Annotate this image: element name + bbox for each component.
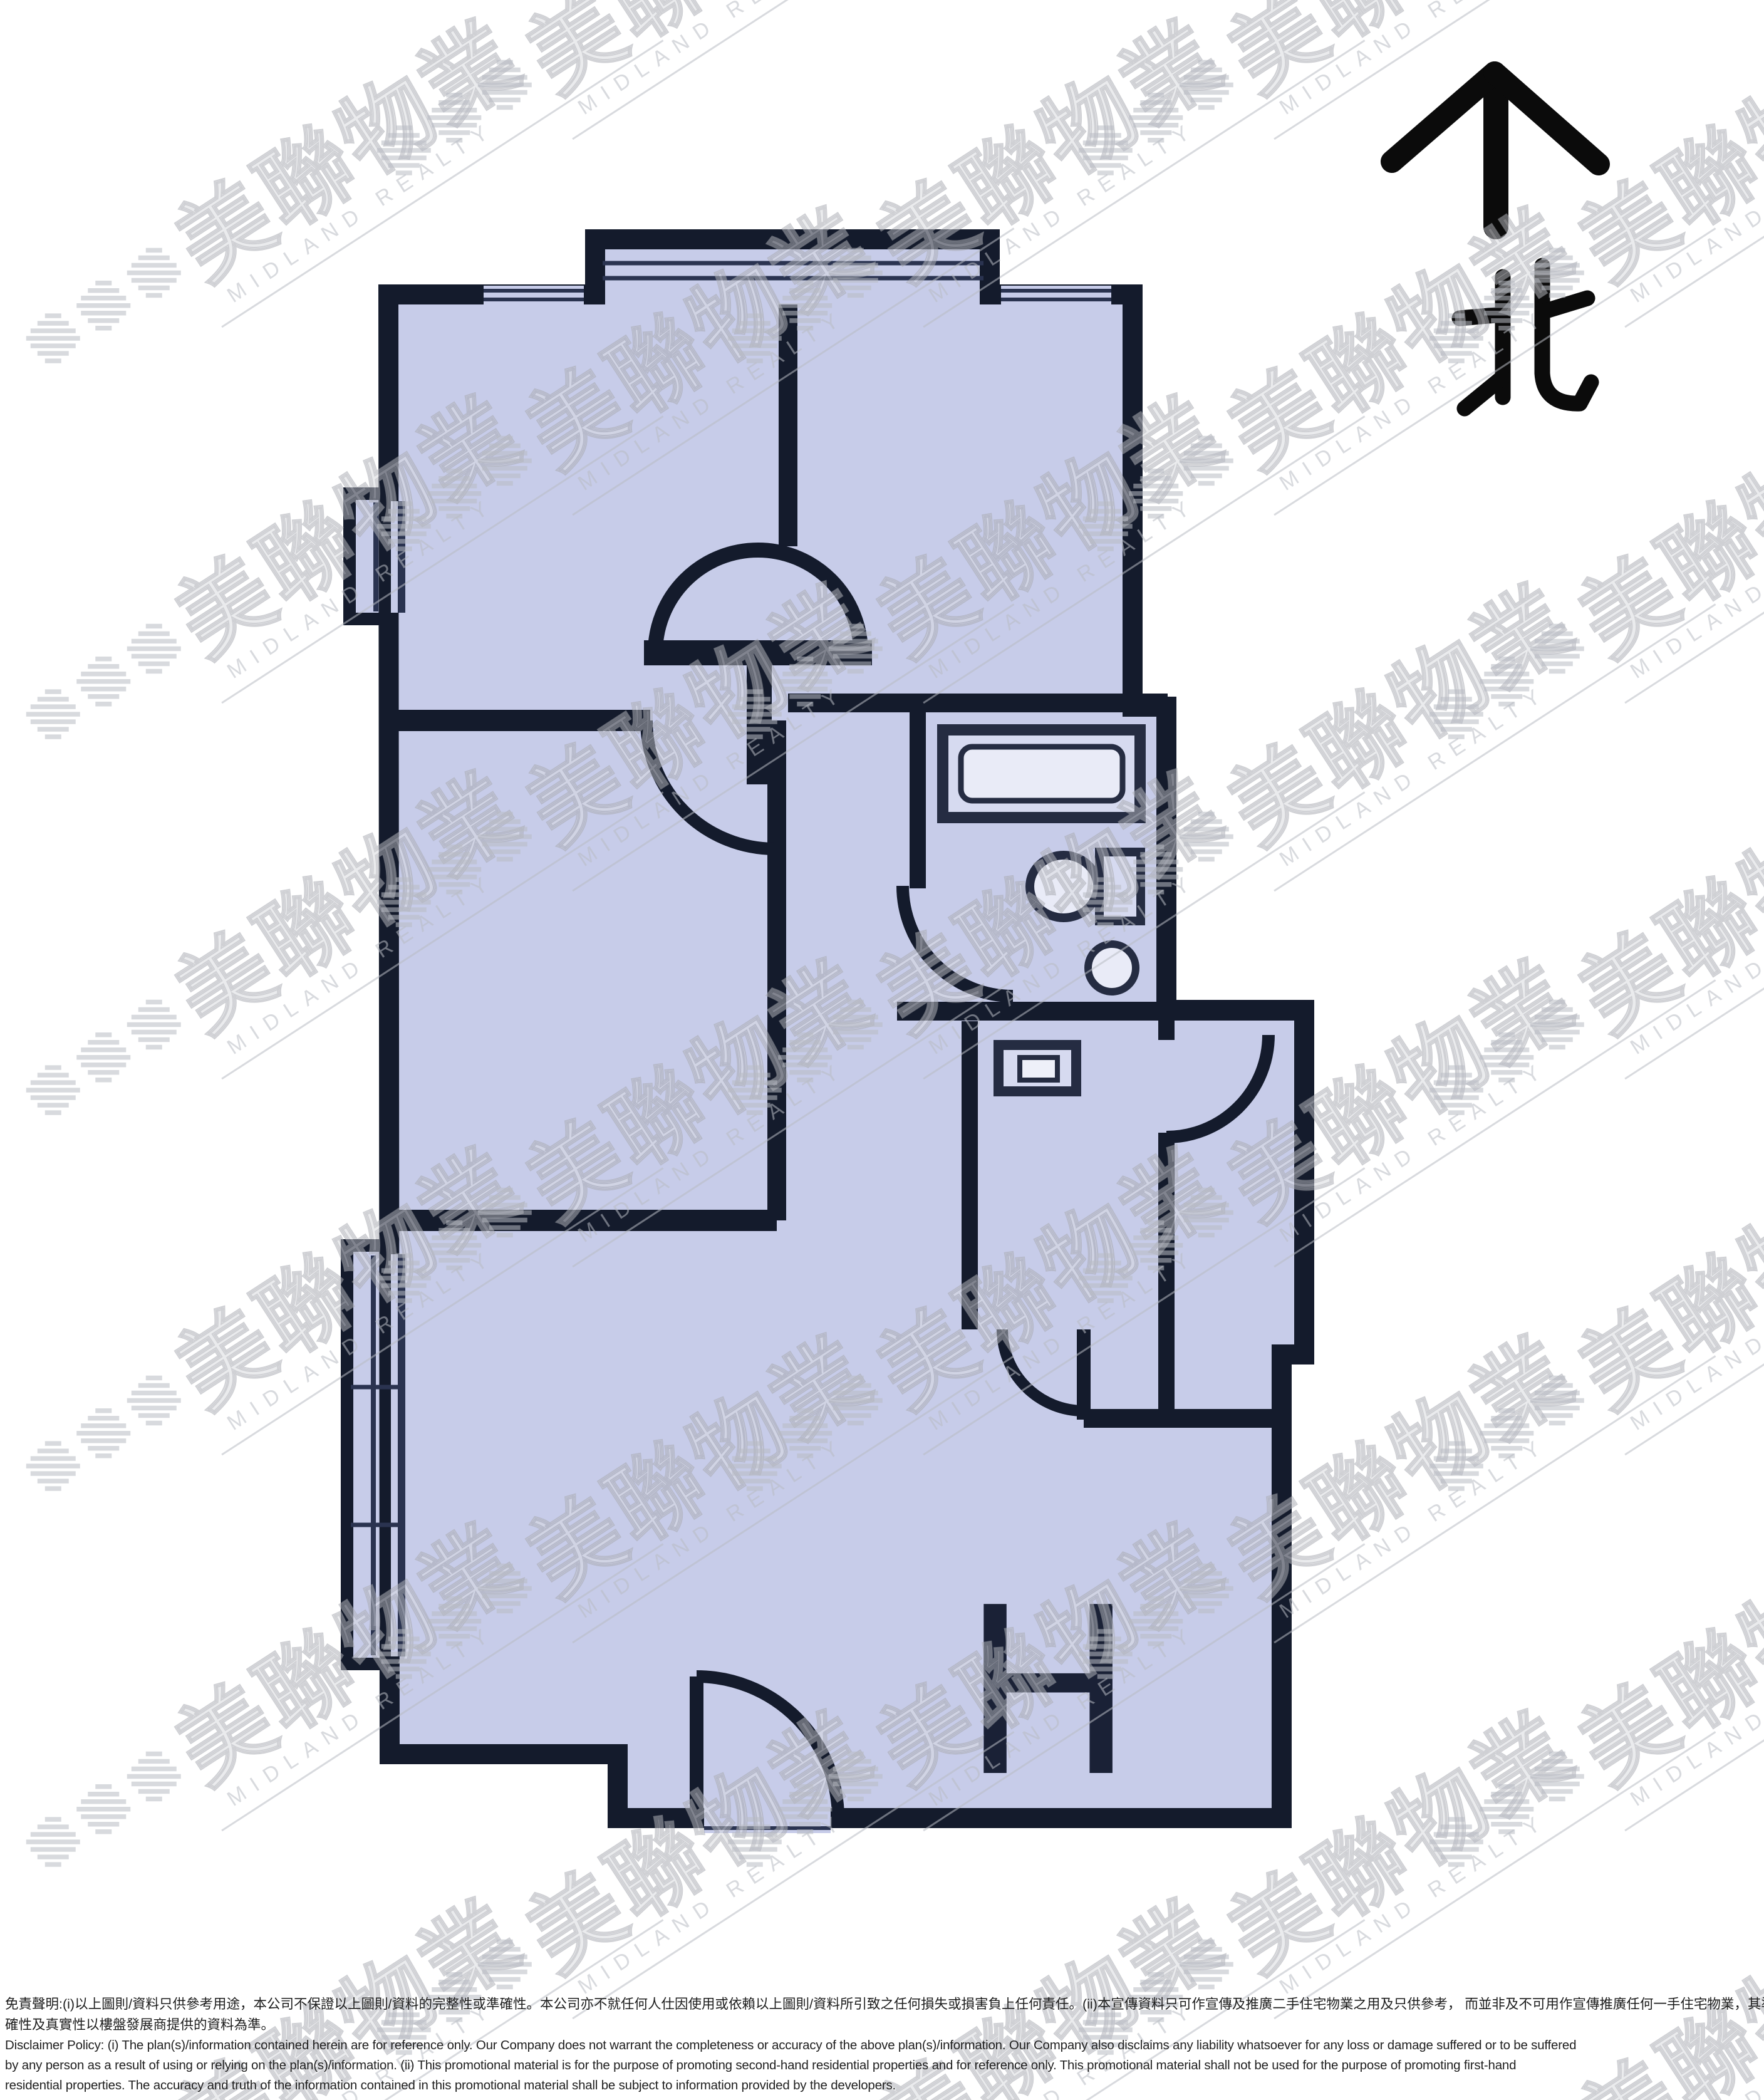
midland-logo-diamond-icon [127,1000,181,1050]
disclaimer-zh-line1: 免責聲明:(i)以上圖則/資料只供參考用途，本公司不保證以上圖則/資料的完整性或… [5,1994,1760,2015]
midland-logo-diamond-icon [76,1408,130,1458]
midland-logo-diamond-icon [76,1784,130,1834]
midland-logo-diamond-icon [26,1817,80,1867]
floor-plan-canvas: H 美聯物業MIDLAND REALTY美聯物業MIDLAND REALTY美聯… [0,0,1764,2100]
midland-logo-diamond-icon [127,248,181,298]
floor-plan-page: H 美聯物業MIDLAND REALTY美聯物業MIDLAND REALTY美聯… [0,0,1764,2100]
watermark-tile: 美聯物業MIDLAND REALTY [1400,0,1764,427]
window-top-right [1001,286,1111,304]
washing-machine-icon [999,1045,1076,1091]
midland-logo-diamond-icon [127,1376,181,1426]
midland-logo-diamond-icon [26,689,80,739]
midland-logo-diamond-icon [26,1065,80,1115]
midland-logo-diamond-icon [76,1032,130,1083]
midland-logo-diamond-icon [26,313,80,363]
disclaimer-en-line2: by any person as a result of using or re… [5,2056,1760,2076]
disclaimer-en-line3: residential properties. The accuracy and… [5,2076,1760,2096]
midland-logo-diamond-icon [26,1441,80,1491]
disclaimer-en-line1: Disclaimer Policy: (i) The plan(s)/infor… [5,2035,1760,2056]
window-top-left [484,286,584,304]
midland-logo-diamond-icon [76,657,130,707]
watermark-text-zh: 美聯物業 [861,3,1240,300]
watermark-text-zh: 美聯物業 [1211,567,1591,864]
midland-logo-diamond-icon [127,1752,181,1802]
midland-logo-diamond-icon [76,281,130,330]
watermark-text-zh: 美聯物業 [1211,191,1591,488]
watermark-text-zh: 美聯物業 [159,3,539,300]
north-arrow-icon [1392,73,1599,227]
disclaimer-zh-line2: 確性及真實性以樓盤發展商提供的資料為準。 [5,2015,1760,2035]
midland-logo-diamond-icon [127,624,181,674]
disclaimer: 免責聲明:(i)以上圖則/資料只供參考用途，本公司不保證以上圖則/資料的完整性或… [5,1994,1760,2095]
